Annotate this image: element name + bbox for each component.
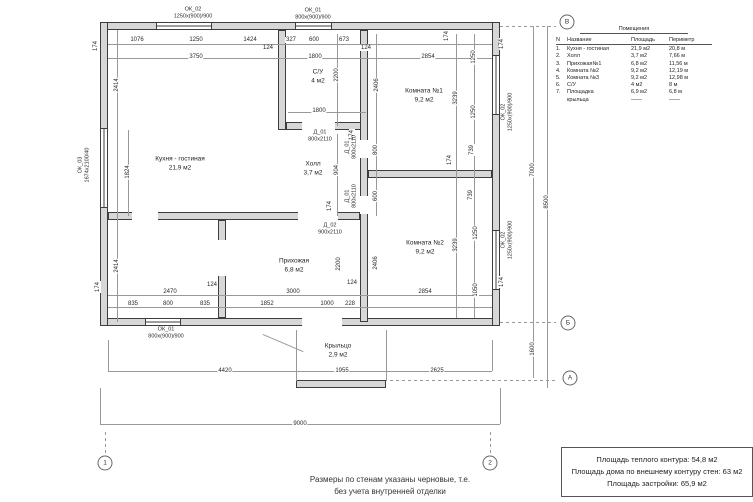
dimension-label: 739 — [468, 189, 474, 201]
opening-mark: Д_01 800х2110 — [345, 184, 358, 208]
dimension-label: 3239 — [453, 237, 459, 252]
table-cell: 4 м2 — [631, 82, 669, 89]
table-cell: 6,8 м2 — [631, 61, 669, 68]
table-header-cell: Периметр — [669, 37, 712, 44]
dimension-label: 835 — [127, 301, 139, 307]
dimension-label: 1250 — [473, 225, 479, 240]
table-cell: 6,8 м — [669, 89, 712, 96]
dimension-label: 3750 — [188, 54, 203, 60]
table-cell: 6. — [556, 82, 567, 89]
window-opening — [100, 128, 108, 208]
table-cell: 5. — [556, 75, 567, 82]
table-row: крыльца———— — [556, 97, 712, 104]
table-cell: крыльца — [567, 97, 631, 104]
dimension-line — [390, 380, 558, 381]
door-opening — [218, 240, 226, 276]
dimension-line — [386, 330, 387, 381]
wall — [296, 380, 386, 388]
dimension-line — [108, 44, 492, 45]
dimension-label: 4420 — [217, 368, 232, 374]
table-cell: Площадка — [567, 89, 631, 96]
table-cell: 4. — [556, 68, 567, 75]
dimension-label: 174 — [95, 281, 101, 293]
dimension-label: 2200 — [334, 67, 340, 82]
dimension-label: 2470 — [162, 289, 177, 295]
table-cell: Холл — [567, 53, 631, 60]
dimension-line — [100, 388, 101, 424]
rooms-table-body: NНазваниеПлощадьПериметр1.Кухня - гостин… — [556, 37, 712, 104]
opening-mark: Д_01 800х2110 — [345, 135, 358, 159]
dimension-label: 327 — [285, 37, 297, 43]
dimension-line — [288, 112, 366, 113]
dimension-label: 1250 — [471, 49, 477, 64]
table-row: 7.Площадка6,9 м26,8 м — [556, 89, 712, 96]
table-cell: —— — [669, 97, 712, 104]
table-cell: 11,56 м — [669, 61, 712, 68]
dimension-line — [296, 330, 297, 381]
table-cell: Прихожая№1 — [567, 61, 631, 68]
dimension-line — [376, 34, 377, 216]
opening-mark: Д_02 900х2110 — [318, 223, 342, 236]
dimension-label: 174 — [327, 200, 333, 212]
room-label: С/У 4 м2 — [311, 69, 325, 86]
dimension-label: 9000 — [292, 421, 307, 427]
table-cell: 1. — [556, 46, 567, 53]
dimension-label: 800 — [162, 301, 174, 307]
dimension-label: 174 — [499, 276, 505, 288]
door-opening — [298, 212, 338, 220]
footnote-line-2: без учета внутренней отделки — [275, 486, 505, 498]
dimension-label: 1250 — [188, 37, 203, 43]
table-cell: 7. — [556, 89, 567, 96]
table-row: 2.Холл3,7 м27,66 м — [556, 53, 712, 60]
table-cell: 3. — [556, 61, 567, 68]
table-cell: 20,8 м — [669, 46, 712, 53]
table-cell — [556, 97, 567, 104]
table-cell: 6,9 м2 — [631, 89, 669, 96]
dimension-label: 124 — [206, 282, 218, 288]
opening-mark: ОК_02 1250х(900)/900 — [501, 93, 514, 132]
opening-mark: ОК_03 1674х2100/40 — [78, 148, 91, 183]
dimension-label: 2854 — [420, 54, 435, 60]
dimension-line — [456, 34, 457, 318]
dimension-label: 1800 — [311, 108, 326, 114]
window-opening — [145, 318, 181, 326]
dimension-label: 3000 — [285, 289, 300, 295]
door-opening — [360, 140, 368, 158]
dimension-label: 2854 — [417, 289, 432, 295]
room-label: Холл 3,7 м2 — [304, 161, 323, 178]
dimension-label: 1955 — [334, 368, 349, 374]
table-cell: 21,9 м2 — [631, 46, 669, 53]
opening-mark: ОК_02 1250х(900)/900 — [174, 7, 213, 20]
dimension-label: 1250 — [471, 104, 477, 119]
dimension-label: 835 — [199, 301, 211, 307]
dimension-label: 1800 — [307, 54, 322, 60]
table-cell: Комната №3 — [567, 75, 631, 82]
room-label: Крыльцо 2,9 м2 — [325, 343, 352, 360]
door-opening — [360, 196, 368, 214]
opening-mark: ОК_01 800х(900)/900 — [295, 8, 330, 21]
dimension-label: 174 — [444, 30, 450, 42]
dimension-line — [490, 432, 491, 456]
dimension-label: 124 — [360, 45, 372, 51]
dimension-label: 7000 — [530, 162, 536, 177]
grid-bubble: А — [563, 371, 578, 386]
opening-mark: Д_01 800х2110 — [308, 130, 332, 143]
dimension-label: 739 — [469, 144, 475, 156]
dimension-label: 2625 — [429, 368, 444, 374]
table-cell: 9,2 м2 — [631, 75, 669, 82]
table-cell: Кухня - гостиная — [567, 46, 631, 53]
area-summary-box: Площадь теплого контура: 54,8 м2 Площадь… — [561, 447, 753, 497]
table-cell: 3,7 м2 — [631, 53, 669, 60]
grid-bubble: 2 — [483, 456, 498, 471]
footnote-line-1: Размеры по стенам указаны черновые, т.е. — [275, 474, 505, 486]
dimension-line — [492, 340, 493, 371]
grid-bubble: Б — [561, 316, 576, 331]
rooms-table: Помещения NНазваниеПлощадьПериметр1.Кухн… — [556, 26, 712, 104]
table-row: 6.С/У4 м28 м — [556, 82, 712, 89]
dimension-label: 3239 — [453, 90, 459, 105]
table-cell: 12,19 м — [669, 68, 712, 75]
table-cell: Комната №2 — [567, 68, 631, 75]
grid-bubble: 1 — [98, 456, 113, 471]
table-cell: —— — [631, 97, 669, 104]
dimension-label: 2406 — [373, 255, 379, 270]
dimension-line — [108, 340, 109, 371]
dimension-label: 2414 — [114, 77, 120, 92]
dimension-label: 8500 — [544, 194, 550, 209]
wall — [278, 30, 286, 130]
summary-line-2: Площадь дома по внешнему контуру стен: 6… — [562, 466, 752, 478]
door-opening — [132, 212, 158, 220]
dimension-label: 673 — [338, 37, 350, 43]
dimension-label: 2414 — [114, 258, 120, 273]
door-opening — [302, 318, 342, 326]
dimension-line — [474, 34, 475, 318]
dimension-label: 174 — [93, 40, 99, 52]
dimension-line — [500, 388, 501, 424]
table-row: 1.Кухня - гостиная21,9 м220,8 м — [556, 46, 712, 53]
room-label: Комната №1 9,2 м2 — [405, 88, 443, 105]
dimension-label: 600 — [373, 190, 379, 202]
dimension-label: 1824 — [125, 164, 131, 179]
dimension-label: 1600 — [530, 341, 536, 356]
room-label: Комната №2 9,2 м2 — [406, 240, 444, 257]
dimension-label: 1424 — [242, 37, 257, 43]
table-cell: 7,66 м — [669, 53, 712, 60]
table-row: 4.Комната №29,2 м212,19 м — [556, 68, 712, 75]
floor-plan-sheet: 1076125014243276006731241243750180028541… — [0, 0, 753, 502]
dimension-line — [263, 334, 304, 352]
dimension-label: 1000 — [319, 301, 334, 307]
dimension-label: 600 — [308, 37, 320, 43]
room-label: Прихожая 6,8 м2 — [279, 258, 309, 275]
opening-mark: ОК_01 800х(900)/900 — [148, 327, 183, 340]
window-opening — [156, 22, 212, 30]
dimension-label: 174 — [447, 154, 453, 166]
dimension-line — [533, 26, 534, 378]
dimension-label: 1050 — [473, 282, 479, 297]
dimension-label: 1076 — [129, 37, 144, 43]
dimension-line — [105, 432, 106, 456]
dimension-label: 2406 — [374, 77, 380, 92]
opening-mark: ОК_02 1250х(900)/900 — [501, 221, 514, 260]
dimension-label: 124 — [262, 45, 274, 51]
footnote: Размеры по стенам указаны черновые, т.е.… — [275, 474, 505, 498]
table-cell: 8 м — [669, 82, 712, 89]
summary-line-1: Площадь теплого контура: 54,8 м2 — [562, 454, 752, 466]
table-row: 3.Прихожая№16,8 м211,56 м — [556, 61, 712, 68]
rooms-table-title: Помещения — [580, 26, 688, 34]
table-cell: 9,2 м2 — [631, 68, 669, 75]
dimension-label: 2200 — [336, 256, 342, 271]
table-cell: 2. — [556, 53, 567, 60]
table-cell: С/У — [567, 82, 631, 89]
table-header-row: NНазваниеПлощадьПериметр — [556, 37, 712, 45]
dimension-line — [500, 26, 556, 27]
dimension-label: 174 — [499, 38, 505, 50]
dimension-label: 228 — [344, 301, 356, 307]
dimension-label: 800 — [373, 144, 379, 156]
table-cell: 12,98 м — [669, 75, 712, 82]
table-row: 5.Комната №39,2 м212,98 м — [556, 75, 712, 82]
window-opening — [492, 55, 500, 115]
table-header-cell: N — [556, 37, 567, 44]
dimension-line — [117, 30, 118, 322]
room-label: Кухня - гостиная 21,9 м2 — [155, 156, 205, 173]
wall — [360, 30, 368, 322]
window-opening — [295, 22, 332, 30]
dimension-line — [108, 295, 492, 296]
table-header-cell: Название — [567, 37, 631, 44]
table-header-cell: Площадь — [631, 37, 669, 44]
dimension-label: 1852 — [259, 301, 274, 307]
dimension-line — [500, 322, 556, 323]
summary-line-3: Площадь застройки: 65,9 м2 — [562, 478, 752, 490]
dimension-label: 904 — [334, 164, 340, 176]
dimension-label: 124 — [346, 280, 358, 286]
dimension-line — [108, 307, 492, 308]
